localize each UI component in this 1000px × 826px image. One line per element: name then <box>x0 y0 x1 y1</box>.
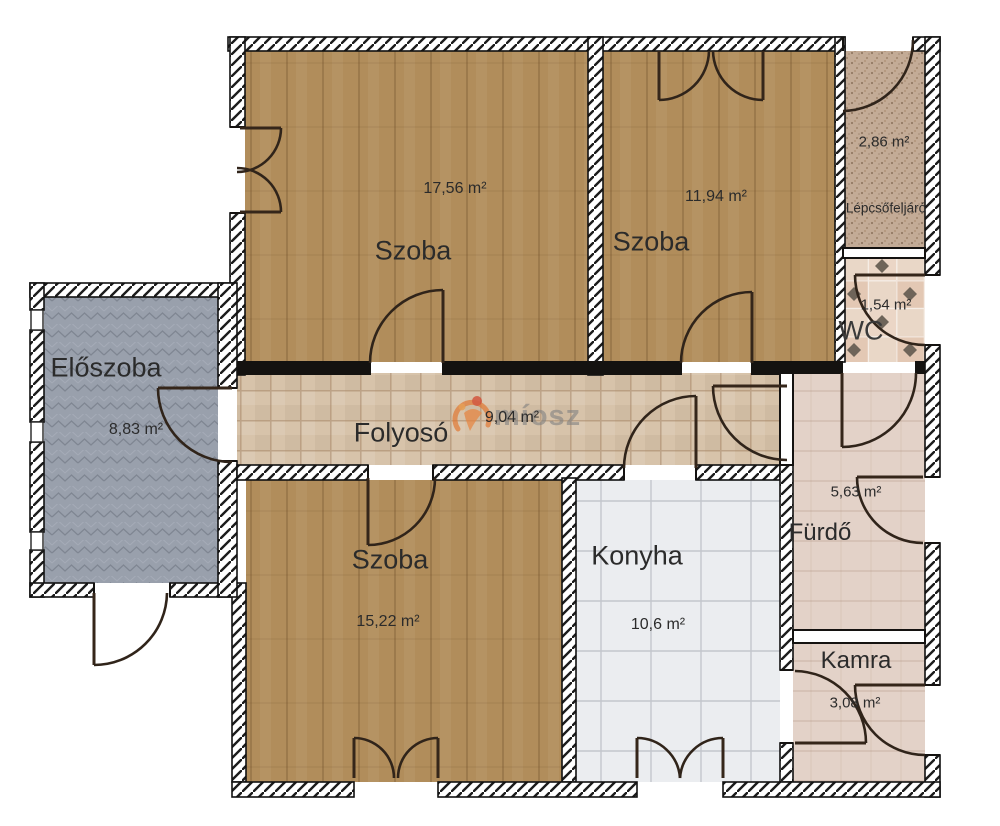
area-folyoso: 9,04 m² <box>485 409 539 427</box>
label-furdo: Fürdő <box>789 519 852 547</box>
floor-eloszoba <box>44 297 218 583</box>
floor-plan: míosz 17,56 m² Szoba 11,94 m² Szoba 2,86… <box>0 0 1000 826</box>
area-wc: 1,54 m² <box>861 297 912 314</box>
area-szoba-top-left: 17,56 m² <box>423 180 486 198</box>
label-szoba-top-right: Szoba <box>613 227 690 258</box>
area-konyha: 10,6 m² <box>631 616 685 634</box>
floor-szoba-top-left <box>245 51 588 362</box>
label-kamra: Kamra <box>821 647 892 675</box>
label-folyoso: Folyosó <box>354 418 449 449</box>
walls-solid <box>237 361 925 375</box>
area-lepcsofeljaro: 2,86 m² <box>859 134 910 151</box>
label-szoba-bottom: Szoba <box>352 545 429 576</box>
area-szoba-bottom: 15,22 m² <box>356 613 419 631</box>
label-lepcsofeljaro: Lépcsőfeljáró <box>846 201 926 216</box>
label-wc: WC <box>839 316 884 347</box>
area-szoba-top-right: 11,94 m² <box>685 188 747 206</box>
area-furdo: 5,63 m² <box>831 484 882 501</box>
label-eloszoba: Előszoba <box>50 353 161 384</box>
label-konyha: Konyha <box>591 541 683 572</box>
floor-szoba-top-right <box>603 51 835 362</box>
area-kamra: 3,08 m² <box>830 695 881 712</box>
label-szoba-top-left: Szoba <box>375 236 452 267</box>
area-eloszoba: 8,83 m² <box>109 421 163 439</box>
floor-szoba-bottom <box>246 480 562 782</box>
